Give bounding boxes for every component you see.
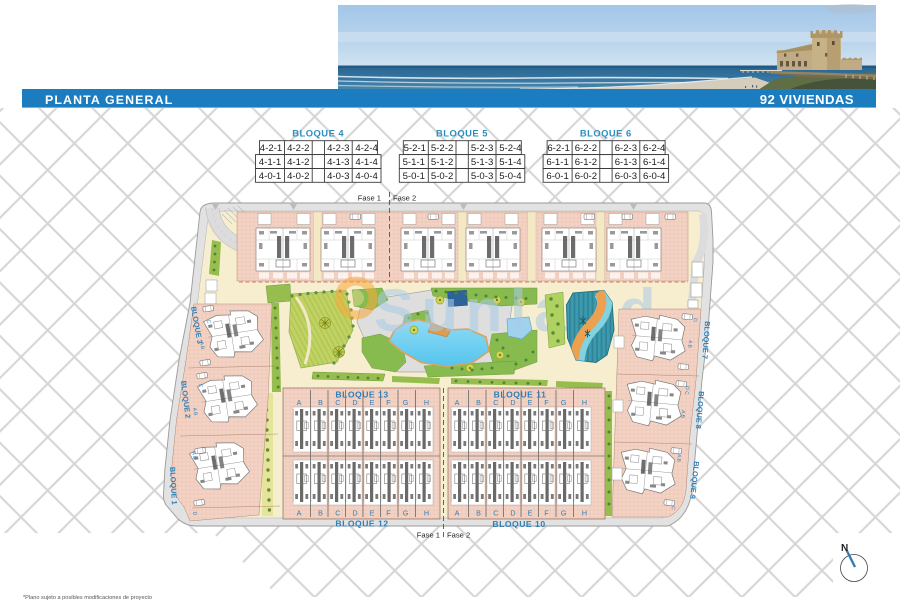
svg-text:C: C	[493, 509, 498, 518]
svg-text:6-1-4: 6-1-4	[643, 157, 666, 168]
svg-text:H: H	[582, 398, 587, 407]
svg-text:6-0-4: 6-0-4	[643, 171, 666, 182]
svg-text:A: A	[455, 398, 460, 407]
svg-text:5-0-2: 5-0-2	[431, 171, 453, 182]
svg-text:A B: A B	[686, 340, 693, 349]
svg-text:Fase 2: Fase 2	[447, 531, 470, 540]
svg-text:6-1-2: 6-1-2	[575, 157, 597, 168]
svg-text:F: F	[386, 509, 391, 518]
svg-text:BLOQUE 10: BLOQUE 10	[492, 519, 545, 529]
svg-text:H: H	[582, 509, 587, 518]
svg-text:B: B	[318, 398, 323, 407]
svg-text:D C: D C	[683, 386, 690, 396]
svg-text:N: N	[841, 543, 848, 554]
svg-text:4-2-3: 4-2-3	[327, 143, 349, 154]
svg-text:E: E	[370, 509, 375, 518]
svg-text:6-0-1: 6-0-1	[546, 171, 568, 182]
svg-text:A: A	[297, 509, 302, 518]
svg-text:G: G	[561, 509, 567, 518]
svg-text:Fase 1: Fase 1	[417, 531, 440, 540]
svg-text:B: B	[318, 509, 323, 518]
svg-text:Fase 1: Fase 1	[358, 194, 381, 203]
svg-text:6-1-1: 6-1-1	[546, 157, 568, 168]
svg-text:5-1-3: 5-1-3	[471, 157, 493, 168]
svg-text:4-2-4: 4-2-4	[355, 143, 378, 154]
svg-text:A: A	[455, 509, 460, 518]
svg-text:4-1-4: 4-1-4	[355, 157, 378, 168]
svg-text:G: G	[403, 398, 409, 407]
svg-text:BLOQUE 5: BLOQUE 5	[436, 127, 488, 138]
svg-text:6-0-3: 6-0-3	[615, 171, 637, 182]
svg-text:B: B	[476, 398, 481, 407]
svg-text:A B: A B	[679, 410, 686, 419]
svg-text:6-2-3: 6-2-3	[615, 143, 637, 154]
svg-text:5-2-4: 5-2-4	[499, 143, 522, 154]
svg-text:6-0-2: 6-0-2	[575, 171, 597, 182]
svg-text:6-2-4: 6-2-4	[643, 143, 666, 154]
svg-text:6-2-2: 6-2-2	[575, 143, 597, 154]
svg-text:6-1-3: 6-1-3	[615, 157, 637, 168]
svg-text:B: B	[476, 509, 481, 518]
svg-text:BLOQUE 6: BLOQUE 6	[580, 127, 632, 138]
svg-text:BLOQUE 12: BLOQUE 12	[335, 519, 388, 529]
svg-text:A: A	[297, 398, 302, 407]
svg-text:5-2-2: 5-2-2	[431, 143, 453, 154]
svg-text:5-1-2: 5-1-2	[431, 157, 453, 168]
svg-text:4-1-3: 4-1-3	[327, 157, 349, 168]
svg-text:C: C	[335, 509, 340, 518]
svg-text:6-2-1: 6-2-1	[547, 143, 569, 154]
svg-text:D: D	[352, 509, 357, 518]
svg-text:4-0-4: 4-0-4	[355, 171, 378, 182]
svg-text:5-2-3: 5-2-3	[471, 143, 493, 154]
svg-text:4-1-2: 4-1-2	[287, 157, 309, 168]
svg-text:4-0-2: 4-0-2	[287, 171, 309, 182]
svg-text:H: H	[424, 398, 429, 407]
svg-text:G: G	[561, 398, 567, 407]
svg-text:5-0-4: 5-0-4	[499, 171, 522, 182]
svg-text:4-1-1: 4-1-1	[259, 157, 281, 168]
svg-text:*Plano sujeto a posibles modif: *Plano sujeto a posibles modificaciones …	[23, 595, 152, 600]
svg-text:G: G	[403, 509, 409, 518]
svg-text:BLOQUE 11: BLOQUE 11	[494, 390, 547, 400]
svg-text:4-0-3: 4-0-3	[327, 171, 349, 182]
svg-text:5-0-3: 5-0-3	[471, 171, 493, 182]
svg-text:5-0-1: 5-0-1	[403, 171, 425, 182]
svg-text:PLANTA GENERAL: PLANTA GENERAL	[45, 93, 173, 107]
svg-text:5-1-1: 5-1-1	[403, 157, 425, 168]
svg-text:5-1-4: 5-1-4	[499, 157, 522, 168]
svg-text:4-2-1: 4-2-1	[260, 143, 282, 154]
svg-text:BLOQUE 4: BLOQUE 4	[292, 127, 344, 138]
svg-text:5-2-1: 5-2-1	[404, 143, 426, 154]
svg-text:Fase 2: Fase 2	[393, 194, 416, 203]
svg-text:4-2-2: 4-2-2	[287, 143, 309, 154]
svg-text:BLOQUE 13: BLOQUE 13	[335, 390, 388, 400]
svg-text:F: F	[544, 509, 549, 518]
svg-text:D: D	[510, 509, 515, 518]
svg-text:4-0-1: 4-0-1	[259, 171, 281, 182]
svg-text:A B: A B	[675, 454, 682, 463]
svg-text:92 VIVIENDAS: 92 VIVIENDAS	[760, 92, 854, 107]
svg-text:H: H	[424, 509, 429, 518]
svg-text:E: E	[528, 509, 533, 518]
